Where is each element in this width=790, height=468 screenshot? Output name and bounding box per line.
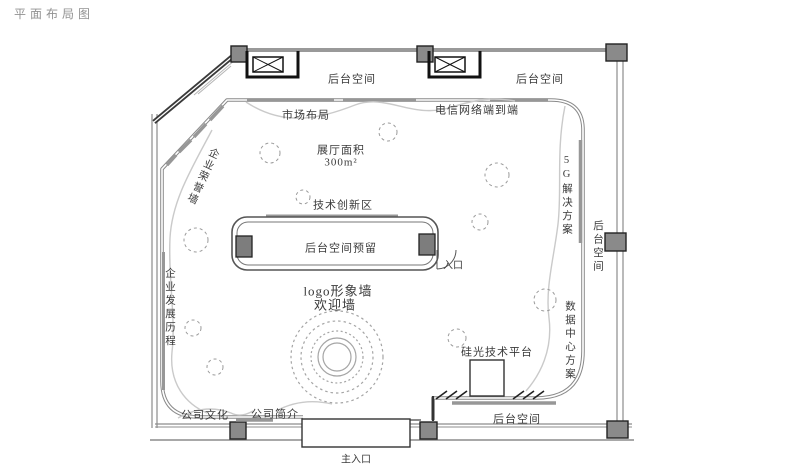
pillar-dashed-circle [485,163,509,187]
label-telecom-wall: 电信网络端到端 [435,105,519,118]
label-company-culture: 公司文化 [181,410,229,423]
label-main-entrance: 主入口 [341,454,371,466]
pillar-dashed-circle [534,289,556,311]
pillar-dashed-circle [184,228,208,252]
welcome-spiral [291,311,383,403]
column [606,44,627,61]
topleft-stair-line [194,60,235,95]
label-datacenter-solution: 数据中心方案 [563,301,575,382]
label-backstage-bottom: 后台空间 [493,414,541,427]
label-welcome-wall: 欢迎墙 [314,299,356,314]
honor-wall-segment [210,106,223,120]
label-backstage-top-right: 后台空间 [516,74,564,87]
column [605,233,626,251]
spiral-ring [323,343,351,371]
elevator-icon [429,51,480,77]
spiral-ring [291,311,383,403]
label-backstage-top-left: 后台空间 [328,74,376,87]
label-backstage-right: 后台空间 [591,220,603,274]
main-entrance-block [302,419,410,447]
label-entrance: 入口 [443,260,463,272]
topleft-diagonal-wall-gap [154,51,239,122]
label-market-layout: 市场布局 [282,110,330,123]
column [231,46,247,62]
label-backstage-reserved: 后台空间预留 [305,243,377,256]
column [607,421,628,438]
silicon-platform-square [470,360,504,396]
page-title: 平面布局图 [14,8,94,22]
elevator-icon [247,51,298,77]
spiral-ring [311,331,363,383]
backstage-block-column [236,236,252,257]
spiral-ring [318,338,356,376]
backstage-block-column [419,234,435,255]
pillar-dashed-circle [448,329,466,347]
column [230,422,246,439]
label-development-history: 企业发展历程 [163,268,175,349]
honor-wall-segment [179,140,191,152]
label-hall-area-title: 展厅面积 [317,145,365,158]
label-5g-solution: 5G解决方案 [560,155,572,237]
pillar-dashed-circle [379,123,397,141]
label-hall-area-value: 300m² [324,157,357,170]
pillar-dashed-circle [260,143,280,163]
column [417,46,433,62]
floor-plan-drawing [0,0,790,468]
floor-plan-canvas: 平面布局图 后台空间 后台空间 电信网络端到端 市场布局 展厅面积 300m² … [0,0,790,468]
pillar-dashed-circle [185,320,201,336]
label-silicon-platform: 硅光技术平台 [461,347,533,360]
pillar-dashed-circle [296,190,310,204]
pillar-dashed-circle [472,214,488,230]
spiral-ring [301,321,373,393]
label-company-profile: 公司简介 [251,409,299,422]
column [420,422,437,439]
label-tech-innovation: 技术创新区 [313,200,373,213]
pillar-dashed-circle [207,359,223,375]
